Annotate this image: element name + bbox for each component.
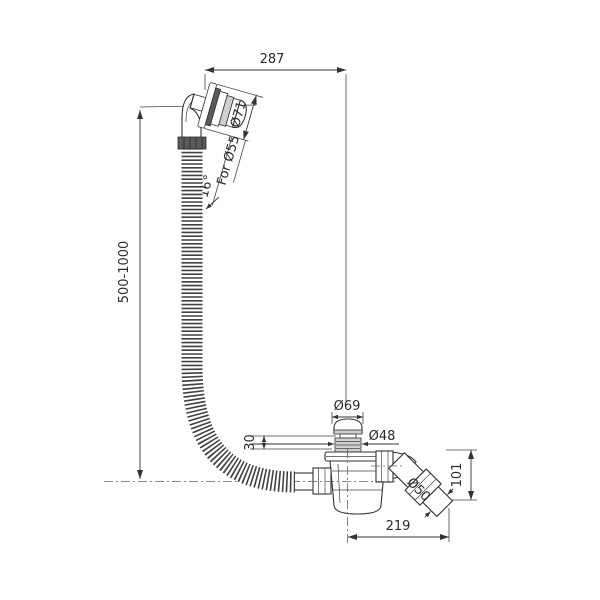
waste-waist [335, 438, 361, 452]
dim-500-1000: 500-1000 [117, 110, 140, 479]
overflow-head: Ø71 For Ø55 16° [165, 79, 263, 216]
dim-500-1000-label: 500-1000 [117, 241, 132, 304]
dim-219-label: 219 [386, 519, 411, 534]
dim-101: 101 [446, 450, 477, 500]
dim-30: 30 [243, 434, 336, 451]
dim-69-label: Ø69 [334, 399, 361, 414]
cap-stem [340, 434, 356, 438]
dim-48: Ø48 [252, 429, 399, 444]
inlet-nut [313, 468, 331, 494]
dim-48-label: Ø48 [369, 429, 396, 444]
popup-cap [334, 419, 362, 438]
dim-50-arrow-top [447, 489, 453, 495]
technical-drawing: Ø71 For Ø55 16° [0, 0, 600, 600]
drawing-canvas: Ø71 For Ø55 16° [0, 0, 600, 600]
dim-30-label: 30 [243, 434, 258, 451]
dim-55-label: For Ø55 [215, 134, 244, 187]
dim-101-label: 101 [450, 463, 465, 488]
dim-50-arrow-bottom [425, 511, 431, 517]
dim-287-label: 287 [260, 52, 285, 67]
hose-clamp [178, 137, 206, 149]
